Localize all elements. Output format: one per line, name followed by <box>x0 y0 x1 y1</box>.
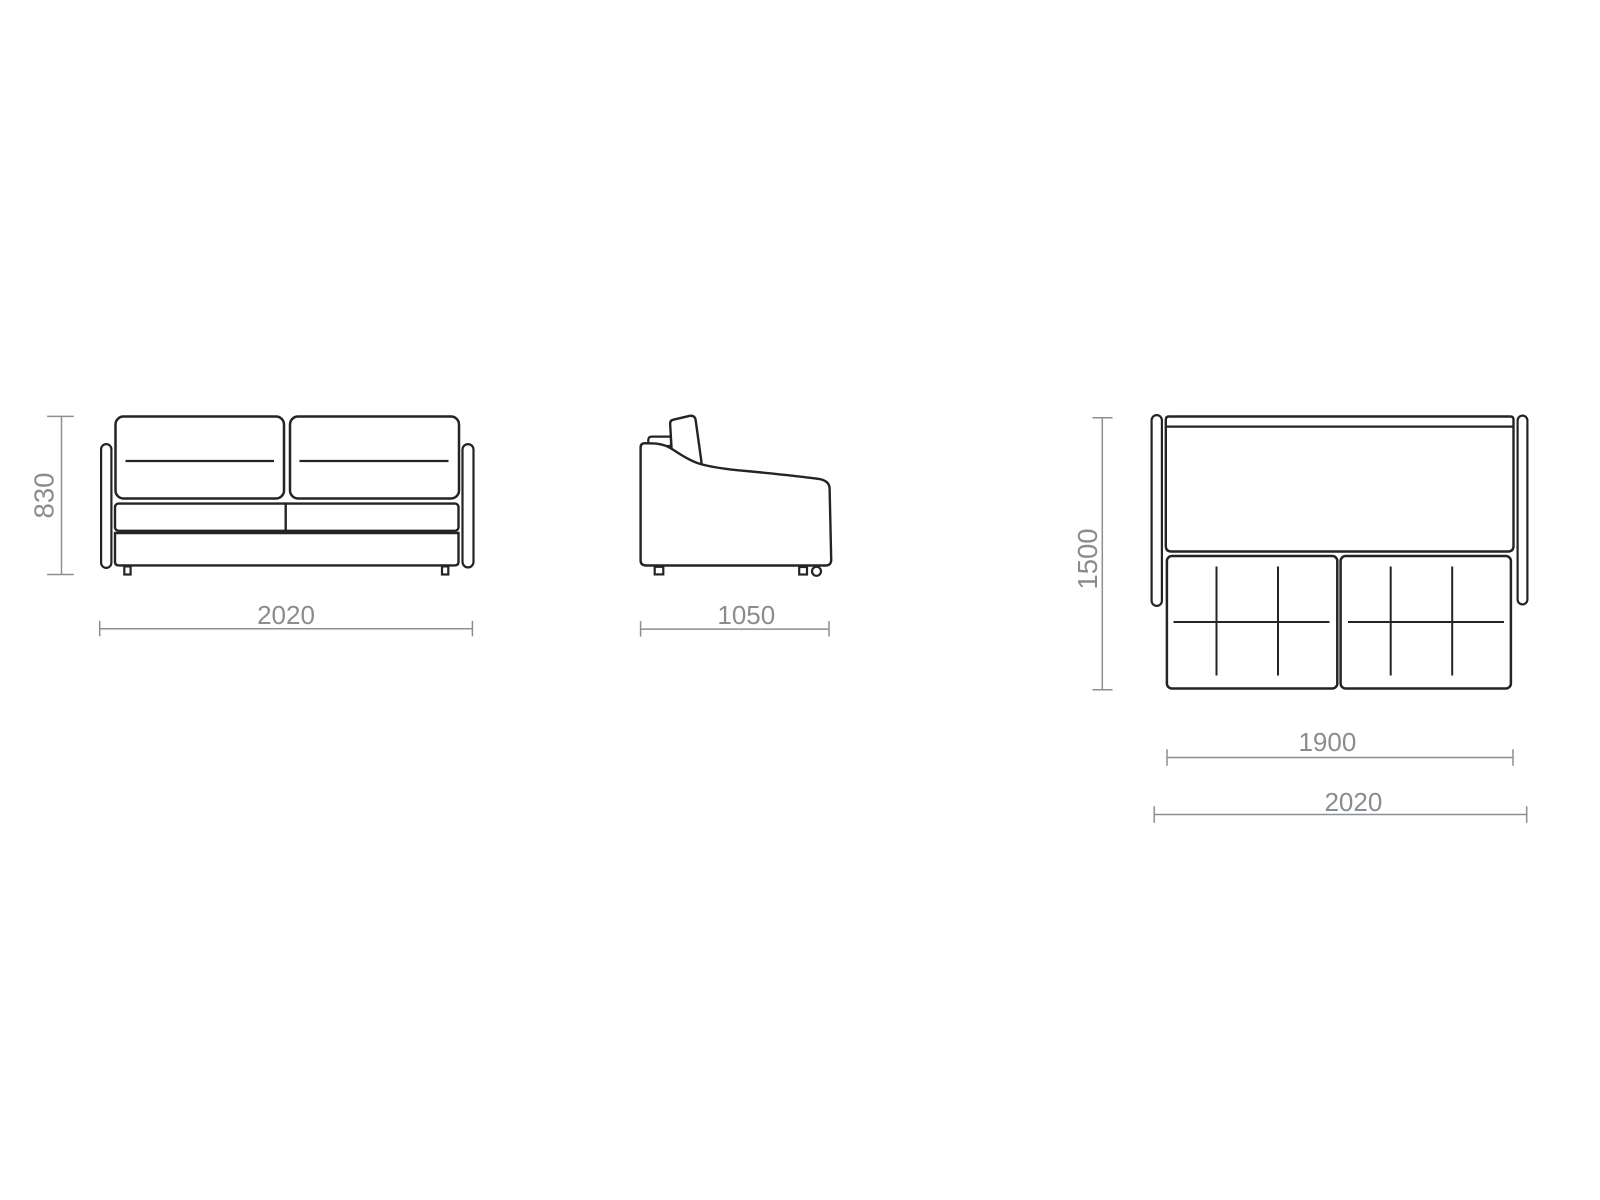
svg-text:1900: 1900 <box>1298 727 1356 757</box>
svg-text:2020: 2020 <box>257 600 315 630</box>
svg-text:1500: 1500 <box>1072 528 1103 589</box>
svg-text:2020: 2020 <box>1324 787 1382 817</box>
svg-text:830: 830 <box>29 473 60 519</box>
svg-text:1050: 1050 <box>717 600 775 630</box>
